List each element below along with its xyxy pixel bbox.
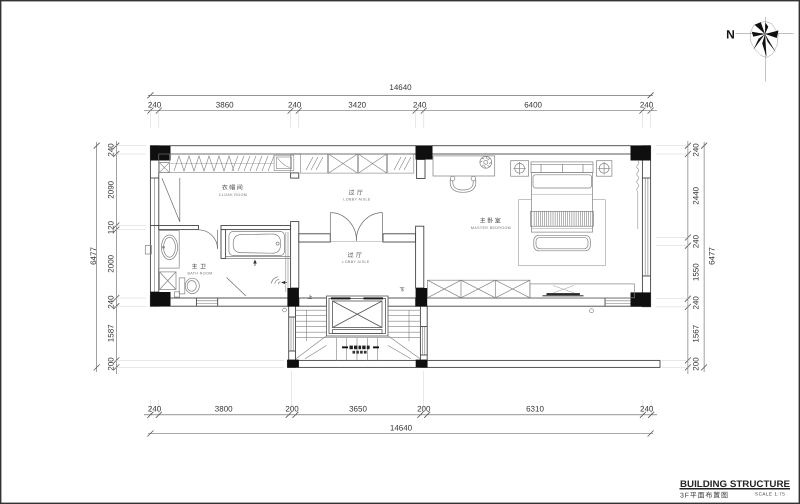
svg-text:14640: 14640 — [389, 83, 412, 92]
svg-text:1587: 1587 — [106, 324, 115, 342]
svg-text:LOBBY AISLE: LOBBY AISLE — [342, 260, 370, 264]
svg-text:1567: 1567 — [691, 324, 700, 342]
svg-text:200: 200 — [285, 404, 299, 413]
svg-text:6310: 6310 — [526, 404, 544, 413]
svg-text:SCALE 1:75: SCALE 1:75 — [755, 492, 785, 497]
svg-text:240: 240 — [148, 101, 162, 110]
svg-text:BATH ROOM: BATH ROOM — [187, 272, 212, 276]
svg-text:6400: 6400 — [524, 101, 542, 110]
svg-text:200: 200 — [417, 404, 431, 413]
svg-text:6477: 6477 — [708, 247, 717, 265]
svg-text:主卧室: 主卧室 — [480, 217, 503, 225]
svg-text:2090: 2090 — [106, 180, 115, 198]
svg-text:240: 240 — [691, 296, 700, 310]
svg-text:240: 240 — [106, 143, 115, 157]
svg-text:2440: 2440 — [691, 186, 700, 204]
svg-text:6477: 6477 — [89, 247, 98, 265]
svg-text:240: 240 — [413, 101, 427, 110]
svg-text:14640: 14640 — [390, 424, 413, 433]
svg-text:3420: 3420 — [348, 101, 366, 110]
svg-text:过厅: 过厅 — [347, 251, 364, 259]
svg-text:N: N — [726, 28, 735, 42]
svg-text:CLOAK ROOM: CLOAK ROOM — [219, 193, 247, 197]
svg-text:240: 240 — [288, 101, 302, 110]
svg-text:2000: 2000 — [106, 254, 115, 272]
svg-text:3800: 3800 — [215, 404, 233, 413]
svg-text:1550: 1550 — [691, 263, 700, 281]
svg-text:120: 120 — [106, 220, 115, 234]
svg-text:240: 240 — [148, 404, 162, 413]
svg-text:3650: 3650 — [349, 404, 367, 413]
svg-text:过厅: 过厅 — [348, 189, 365, 197]
svg-text:240: 240 — [691, 143, 700, 157]
svg-text:240: 240 — [640, 101, 654, 110]
svg-text:衣帽间: 衣帽间 — [222, 184, 245, 192]
svg-text:240: 240 — [691, 234, 700, 248]
svg-text:200: 200 — [106, 357, 115, 371]
svg-text:3F平面布置图: 3F平面布置图 — [680, 492, 729, 500]
svg-text:MASTER BEDROOM: MASTER BEDROOM — [471, 226, 511, 230]
svg-text:主卫: 主卫 — [191, 263, 208, 271]
svg-text:240: 240 — [106, 295, 115, 309]
svg-text:240: 240 — [640, 404, 654, 413]
svg-text:200: 200 — [691, 357, 700, 371]
svg-text:3860: 3860 — [216, 101, 234, 110]
svg-text:LOBBY AISLE: LOBBY AISLE — [343, 198, 371, 202]
